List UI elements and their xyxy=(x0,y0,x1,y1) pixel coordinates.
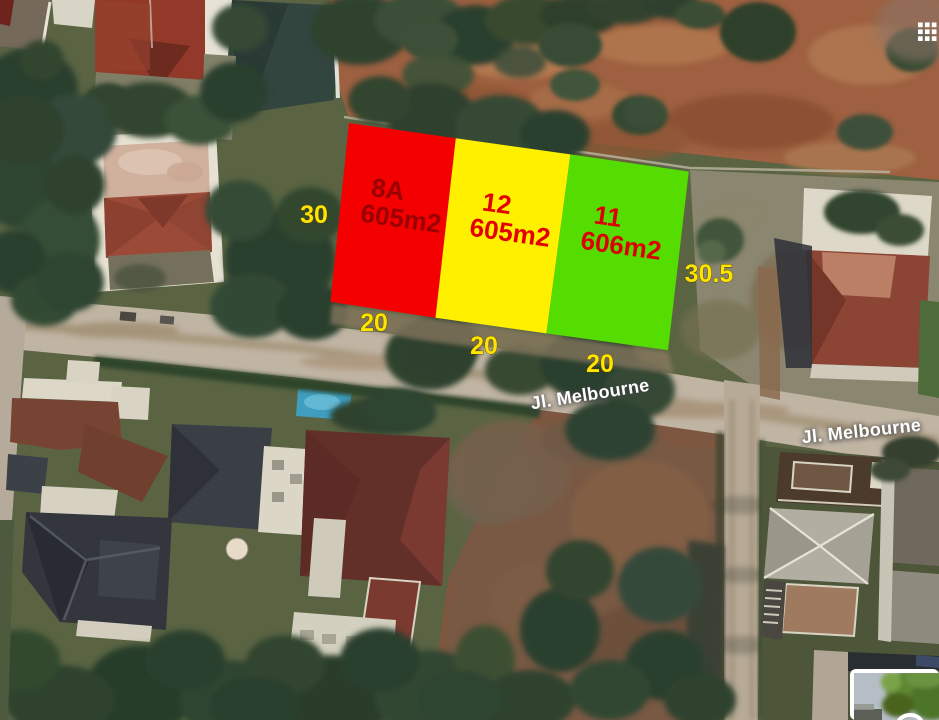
svg-text:20: 20 xyxy=(470,332,498,360)
svg-text:30.5: 30.5 xyxy=(685,260,734,288)
svg-text:20: 20 xyxy=(360,309,388,337)
svg-text:30: 30 xyxy=(300,201,328,229)
svg-text:20: 20 xyxy=(586,350,614,378)
